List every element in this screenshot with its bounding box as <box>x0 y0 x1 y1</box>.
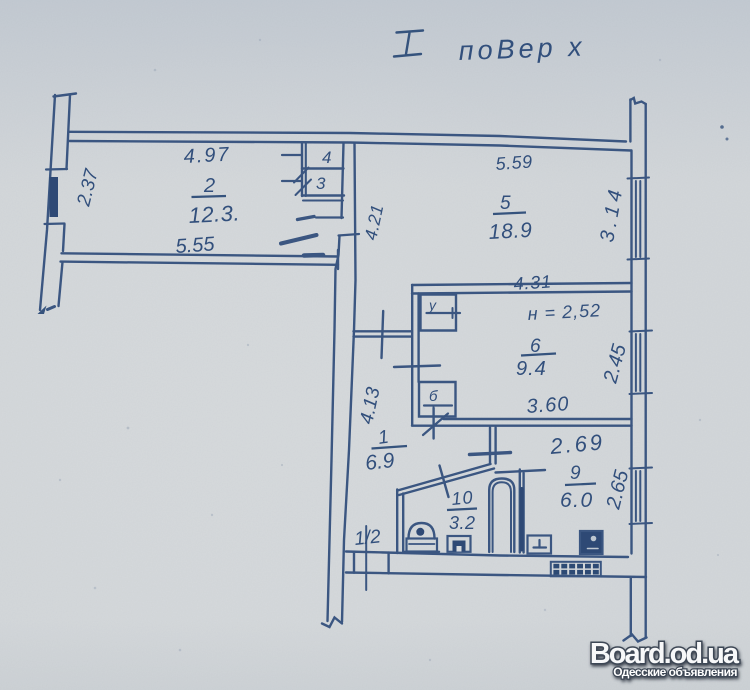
svg-text:9: 9 <box>570 463 581 484</box>
svg-text:б: б <box>429 388 438 405</box>
svg-text:3: 3 <box>316 174 326 193</box>
svg-text:4: 4 <box>322 148 331 167</box>
svg-text:1/2: 1/2 <box>353 526 382 550</box>
svg-text:3.60: 3.60 <box>526 393 570 418</box>
svg-text:4.31: 4.31 <box>513 271 553 294</box>
svg-text:5: 5 <box>500 193 511 214</box>
svg-text:12.3.: 12.3. <box>188 200 241 228</box>
svg-text:6.9: 6.9 <box>364 449 396 475</box>
svg-text:4.97: 4.97 <box>183 144 231 168</box>
svg-text:2: 2 <box>203 175 215 197</box>
svg-text:2.69: 2.69 <box>548 429 606 459</box>
svg-text:поВер х: поВер х <box>458 32 586 66</box>
svg-text:10: 10 <box>451 487 475 509</box>
svg-text:9.4: 9.4 <box>516 358 547 380</box>
svg-text:18.9: 18.9 <box>488 219 533 244</box>
svg-text:5.59: 5.59 <box>495 151 533 174</box>
svg-text:у: у <box>428 297 437 313</box>
svg-text:3.2: 3.2 <box>449 513 476 533</box>
svg-text:Одесские объявления: Одесские объявления <box>613 665 737 679</box>
svg-text:н = 2,52: н = 2,52 <box>527 300 601 324</box>
svg-text:5.55: 5.55 <box>175 233 216 258</box>
svg-text:6.0: 6.0 <box>560 489 594 512</box>
